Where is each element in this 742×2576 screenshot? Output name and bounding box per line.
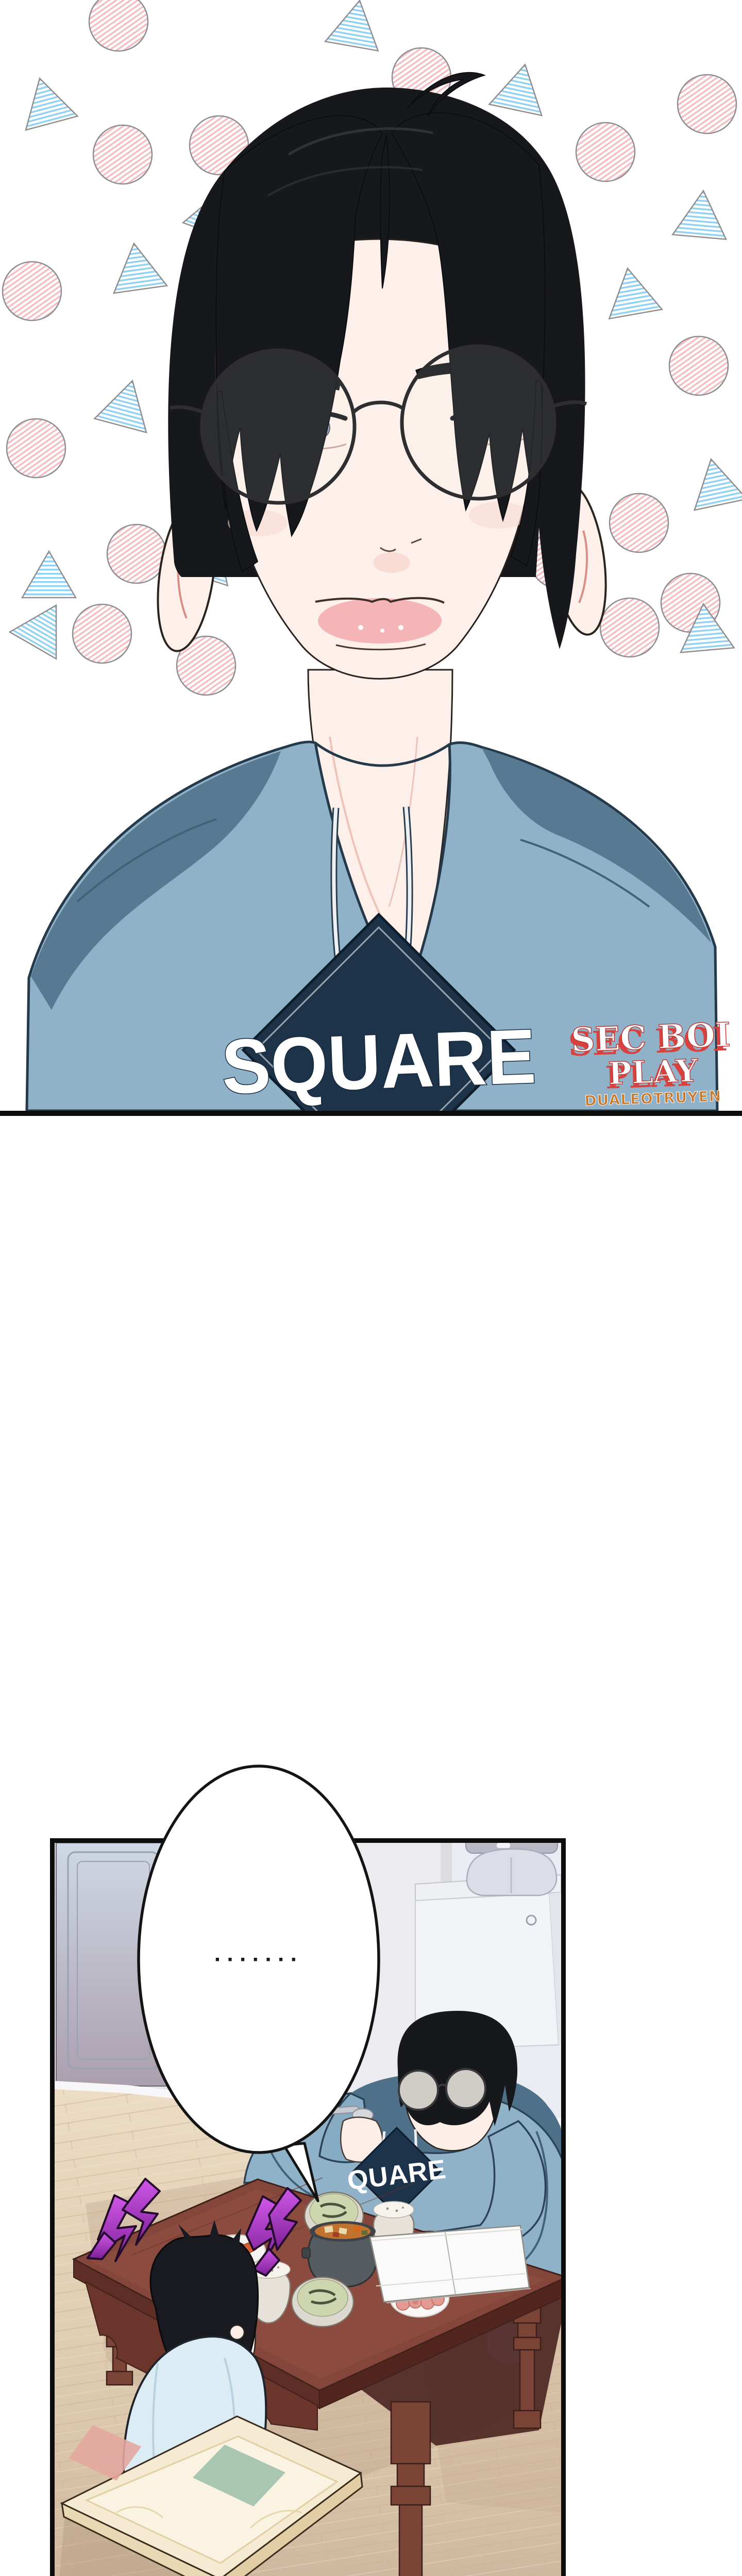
pattern-triangle [107, 240, 167, 293]
comic-page: SQUARE [0, 0, 742, 2576]
watermark-line-1: SEC BOI [570, 1015, 731, 1060]
pattern-circle [89, 0, 148, 51]
pattern-circle [678, 75, 736, 133]
pattern-circle [7, 419, 65, 478]
soup-bowl-child [292, 2277, 353, 2327]
pattern-circle [600, 598, 659, 657]
hoodie-logo-text: SQUARE [220, 1012, 537, 1110]
pattern-triangle [14, 72, 78, 130]
pattern-triangle [685, 453, 742, 510]
child-ear [230, 2325, 244, 2340]
pattern-circle [3, 262, 61, 320]
pattern-triangle [672, 189, 730, 240]
man-portrait: SQUARE [27, 73, 717, 1111]
watermark-line-2: PLAY [608, 1053, 699, 1092]
pattern-circle [73, 604, 131, 663]
open-book [370, 2226, 531, 2303]
rice-cooker [466, 1843, 558, 1895]
pattern-circle [107, 524, 166, 583]
speech-bubble-tail [284, 2143, 318, 2201]
pattern-triangle [325, 0, 386, 51]
pattern-circle [610, 494, 668, 552]
portrait-art: SQUARE [0, 0, 742, 1111]
pattern-triangle [22, 551, 76, 598]
pattern-triangle [601, 264, 662, 319]
pattern-circle [93, 125, 152, 184]
pattern-circle [669, 336, 728, 395]
pattern-circle [576, 123, 635, 181]
speech-bubble-text: ······· [214, 1947, 303, 1972]
pattern-triangle [10, 592, 79, 659]
pattern-triangle [94, 374, 158, 433]
panel-portrait: SQUARE [0, 0, 742, 1116]
speech-bubble-layer: ······· [131, 1762, 389, 2210]
pattern-triangle [489, 59, 551, 115]
